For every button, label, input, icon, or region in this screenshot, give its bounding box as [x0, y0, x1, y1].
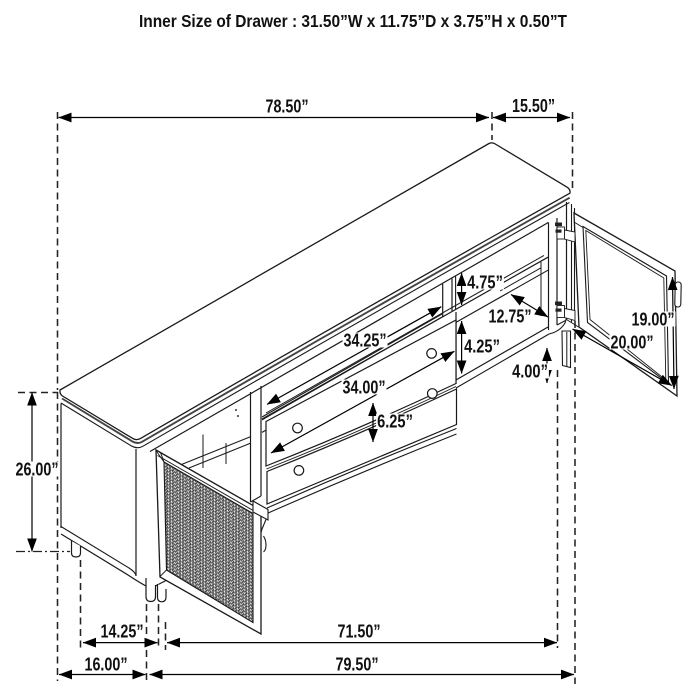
svg-text:14.25”: 14.25”: [101, 622, 144, 642]
svg-text:4.75”: 4.75”: [467, 273, 503, 293]
svg-text:78.50”: 78.50”: [266, 97, 309, 117]
svg-text:26.00”: 26.00”: [16, 460, 59, 480]
svg-text:16.00”: 16.00”: [85, 655, 128, 675]
svg-text:71.50”: 71.50”: [338, 622, 381, 642]
svg-text:6.25”: 6.25”: [377, 412, 413, 432]
svg-text:Inner Size of Drawer : 31.50”W: Inner Size of Drawer : 31.50”W x 11.75”D…: [139, 11, 567, 31]
svg-text:19.00”: 19.00”: [632, 310, 675, 330]
svg-text:12.75”: 12.75”: [489, 307, 532, 327]
svg-text:4.25”: 4.25”: [464, 337, 500, 357]
svg-text:20.00”: 20.00”: [611, 333, 654, 353]
svg-text:4.00”: 4.00”: [512, 362, 548, 382]
svg-text:34.25”: 34.25”: [344, 331, 387, 351]
svg-text:79.50”: 79.50”: [336, 655, 379, 675]
svg-text:15.50”: 15.50”: [512, 96, 555, 116]
svg-text:34.00”: 34.00”: [343, 378, 386, 398]
